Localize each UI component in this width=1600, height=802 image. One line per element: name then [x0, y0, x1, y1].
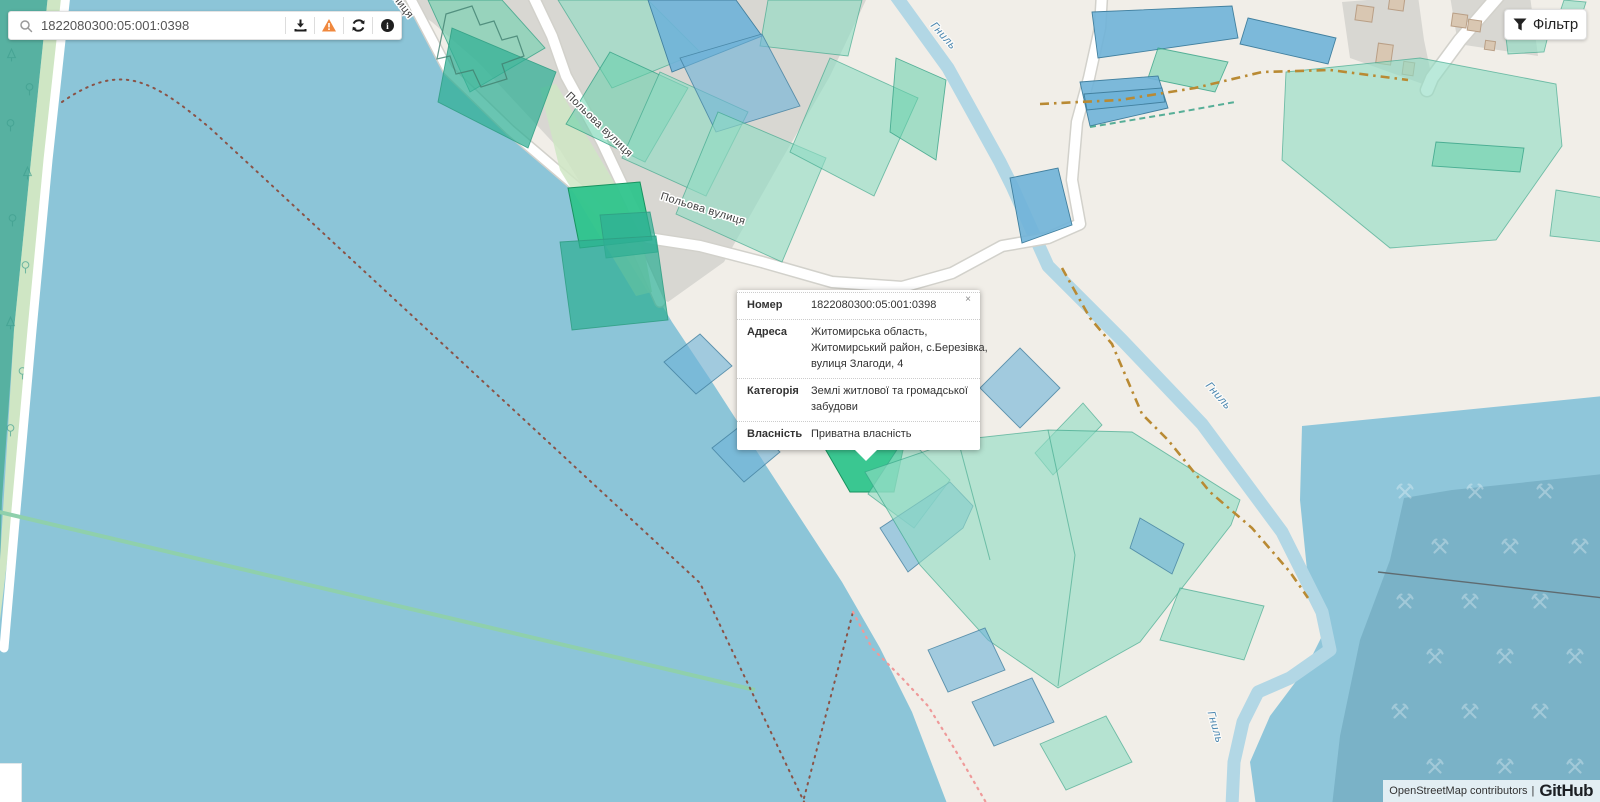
map-app: Польова вулиця Польова вулиця вулиця Гни… [0, 0, 1600, 802]
corner-notch [0, 763, 22, 802]
filter-button-label: Фільтр [1533, 16, 1578, 33]
refresh-button[interactable] [344, 12, 372, 39]
search-bar: i [8, 11, 402, 40]
popup-row-value: 1822080300:05:001:0398 [811, 298, 970, 314]
osm-attribution-link[interactable]: OpenStreetMap contributors [1389, 785, 1527, 797]
popup-row-number: Номер 1822080300:05:001:0398 [737, 292, 980, 319]
svg-text:i: i [386, 22, 389, 32]
popup-row-label: Адреса [747, 325, 811, 373]
info-button[interactable]: i [373, 12, 401, 39]
download-button[interactable] [286, 12, 314, 39]
filter-button[interactable]: Фільтр [1504, 9, 1587, 40]
parcel-info-popup: × Номер 1822080300:05:001:0398 Адреса Жи… [737, 290, 980, 450]
warning-button[interactable] [315, 12, 343, 39]
popup-row-label: Власність [747, 427, 811, 443]
attribution-separator: | [1531, 785, 1534, 797]
popup-row-label: Номер [747, 298, 811, 314]
filter-funnel-icon [1513, 18, 1527, 31]
popup-row-address: Адреса Житомирська область, Житомирський… [737, 319, 980, 378]
popup-close-button[interactable]: × [963, 292, 973, 307]
attribution-bar: OpenStreetMap contributors | GitHub [1383, 780, 1600, 802]
popup-row-value: Землі житлової та громадської забудови [811, 384, 970, 416]
magnifier-icon [19, 19, 33, 33]
search-input[interactable] [39, 17, 285, 34]
popup-row-label: Категорія [747, 384, 811, 416]
popup-row-category: Категорія Землі житлової та громадської … [737, 378, 980, 421]
popup-row-value: Житомирська область, Житомирський район,… [811, 325, 988, 373]
popup-tail [855, 450, 877, 461]
popup-row-value: Приватна власність [811, 427, 970, 443]
popup-row-ownership: Власність Приватна власність [737, 421, 980, 448]
github-link[interactable]: GitHub [1539, 781, 1593, 801]
